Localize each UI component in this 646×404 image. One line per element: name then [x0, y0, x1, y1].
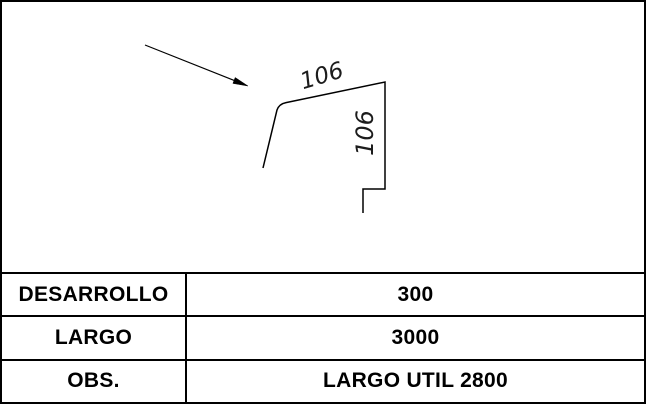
- leader-arrow-head-icon: [233, 78, 248, 87]
- dimension-label-right: 106: [351, 110, 379, 156]
- drawing-sheet: 106 106 DESARROLLO 300 LARGO 3000 OBS. L…: [0, 0, 646, 404]
- profile-drawing-canvas: 106 106: [2, 2, 644, 272]
- spec-label-obs: OBS.: [2, 361, 187, 402]
- spec-value-largo: 3000: [187, 317, 644, 358]
- table-row-desarrollo: DESARROLLO 300: [2, 274, 644, 315]
- profile-drawing-area: 106 106: [2, 2, 644, 272]
- table-row-obs: OBS. LARGO UTIL 2800: [2, 359, 644, 402]
- dimension-label-top: 106: [297, 57, 347, 95]
- spec-label-desarrollo: DESARROLLO: [2, 274, 187, 315]
- spec-table: DESARROLLO 300 LARGO 3000 OBS. LARGO UTI…: [2, 272, 644, 402]
- spec-value-obs: LARGO UTIL 2800: [187, 361, 644, 402]
- leader-arrow-line: [145, 45, 242, 84]
- spec-value-desarrollo: 300: [187, 274, 644, 315]
- table-row-largo: LARGO 3000: [2, 315, 644, 358]
- spec-label-largo: LARGO: [2, 317, 187, 358]
